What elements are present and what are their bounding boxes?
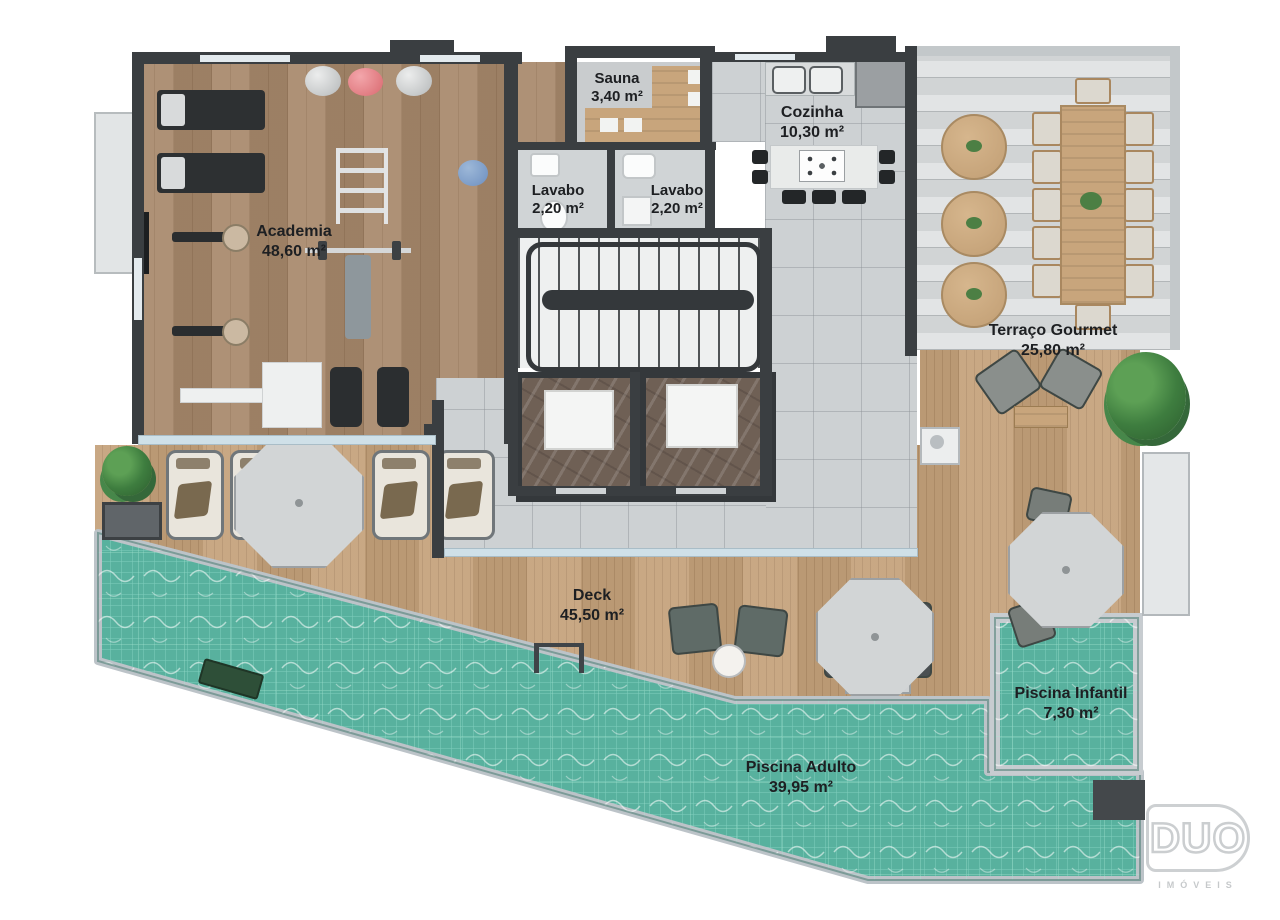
window [134, 258, 142, 320]
room-label-piscina-infantil: Piscina Infantil 7,30 m² [1015, 684, 1128, 723]
room-name: Deck [573, 587, 611, 604]
round-table [941, 191, 1007, 257]
room-label-lavabo-1: Lavabo 2,20 m² [532, 182, 585, 219]
bar-stool [879, 150, 895, 164]
room-name: Piscina Infantil [1015, 685, 1128, 702]
treadmill-console [161, 94, 185, 126]
deck-bench [1014, 406, 1068, 428]
elevator-cabin [544, 390, 614, 450]
room-label-cozinha: Cozinha 10,30 m² [780, 103, 844, 142]
logo-box: DUO [1146, 804, 1250, 872]
room-area: 7,30 m² [1043, 705, 1098, 722]
wall [607, 150, 615, 236]
room-name: Terraço Gourmet [989, 322, 1118, 339]
stair-landing-bar [542, 290, 754, 310]
wall [905, 46, 917, 356]
elevator-cabin [666, 384, 738, 448]
multi-gym-frame [262, 362, 322, 428]
dining-chair [1032, 226, 1062, 260]
wall [508, 228, 772, 238]
wall [705, 142, 715, 236]
terrace-parapet [917, 46, 1180, 56]
wall [508, 142, 716, 150]
wall [700, 46, 712, 150]
plant [102, 446, 152, 496]
room-name: Lavabo [651, 182, 704, 199]
glass-wall [138, 435, 436, 445]
dining-chair [1124, 112, 1154, 146]
large-plant [1106, 352, 1186, 440]
exercise-ball [348, 68, 383, 96]
umbrella [816, 578, 934, 696]
dining-chair [1124, 188, 1154, 222]
wall [508, 228, 518, 492]
dining-chair [1032, 264, 1062, 298]
exercise-ball [458, 160, 488, 186]
gym-mat [377, 367, 409, 427]
room-area: 48,60 m² [262, 243, 326, 260]
floor-plan: Academia 48,60 m² Sauna 3,40 m² Lavabo 2… [0, 0, 1280, 920]
sauna-stool [624, 118, 642, 132]
room-area: 45,50 m² [560, 607, 624, 624]
dining-chair [1124, 264, 1154, 298]
wall [630, 372, 640, 490]
wall [565, 46, 577, 150]
wall [132, 52, 144, 444]
room-name: Cozinha [781, 104, 843, 121]
room-area: 25,80 m² [1021, 342, 1085, 359]
deck-armchair [668, 603, 723, 656]
bike-seat [222, 224, 250, 252]
wall [508, 486, 772, 496]
exercise-ball [396, 66, 432, 96]
bar-stool [879, 170, 895, 184]
sun-lounger [372, 450, 430, 540]
room-area: 3,40 m² [591, 88, 643, 105]
room-name: Lavabo [532, 182, 585, 199]
wall [565, 46, 715, 58]
logo-subtitle: IMÓVEIS [1146, 880, 1250, 890]
room-area: 2,20 m² [532, 200, 584, 217]
toilet-icon [530, 153, 560, 177]
wall [826, 36, 896, 62]
round-table [941, 262, 1007, 328]
room-name: Piscina Adulto [746, 759, 857, 776]
glass-wall [444, 548, 918, 557]
elevator-door [556, 488, 606, 494]
dining-chair [1075, 78, 1111, 104]
window [735, 54, 795, 60]
sauna-stool [600, 118, 618, 132]
room-area: 10,30 m² [780, 124, 844, 141]
refrigerator [855, 60, 911, 108]
table-plant-icon [1080, 192, 1102, 210]
room-label-terraco: Terraço Gourmet 25,80 m² [989, 321, 1118, 360]
dining-chair [1032, 188, 1062, 222]
bike-seat [222, 318, 250, 346]
room-label-deck: Deck 45,50 m² [560, 586, 624, 625]
bar-stool [752, 150, 768, 164]
room-label-academia: Academia 48,60 m² [256, 222, 332, 261]
pool-ladder-icon [534, 643, 584, 673]
deck-mat [102, 502, 162, 540]
logo: DUO IMÓVEIS [1146, 804, 1250, 892]
toilet-icon [622, 153, 656, 179]
round-table [941, 114, 1007, 180]
gym-mat [330, 367, 362, 427]
bar-stool [842, 190, 866, 204]
sink-icon [622, 196, 652, 226]
pool-corner-block [1093, 780, 1145, 820]
kitchen-sink-icon [772, 66, 806, 94]
umbrella [1008, 512, 1124, 628]
vestibule-floor [712, 62, 767, 142]
bar-stool [752, 170, 768, 184]
room-area: 39,95 m² [769, 779, 833, 796]
cooktop-icon [799, 150, 845, 182]
room-name: Sauna [594, 70, 639, 87]
kitchen-sink-icon [809, 66, 843, 94]
treadmill-console [161, 157, 185, 189]
room-name: Academia [256, 223, 332, 240]
dining-chair [1124, 150, 1154, 184]
side-table [712, 644, 746, 678]
window [420, 55, 480, 62]
terrace-parapet [1170, 46, 1180, 350]
weight-rack [336, 148, 388, 224]
barbell-plate [392, 241, 401, 260]
elevator-door [676, 488, 726, 494]
bar-stool [812, 190, 836, 204]
bar-stool [782, 190, 806, 204]
logo-brand: DUO [1150, 814, 1246, 862]
balcony [1142, 452, 1190, 616]
dining-chair [1124, 226, 1154, 260]
sun-lounger [166, 450, 224, 540]
window [200, 55, 290, 62]
shower-head-icon [930, 435, 944, 449]
wall [760, 228, 772, 492]
bench-press-bench [345, 255, 371, 339]
sun-lounger [437, 450, 495, 540]
umbrella [234, 438, 364, 568]
room-label-sauna: Sauna 3,40 m² [591, 70, 643, 107]
room-label-lavabo-2: Lavabo 2,20 m² [651, 182, 704, 219]
room-area: 2,20 m² [651, 200, 703, 217]
dining-chair [1032, 112, 1062, 146]
exercise-ball [305, 66, 341, 96]
wall [390, 40, 454, 54]
dining-chair [1032, 150, 1062, 184]
room-label-piscina-adulto: Piscina Adulto 39,95 m² [746, 758, 857, 797]
gym-floor-alcove [518, 62, 565, 142]
